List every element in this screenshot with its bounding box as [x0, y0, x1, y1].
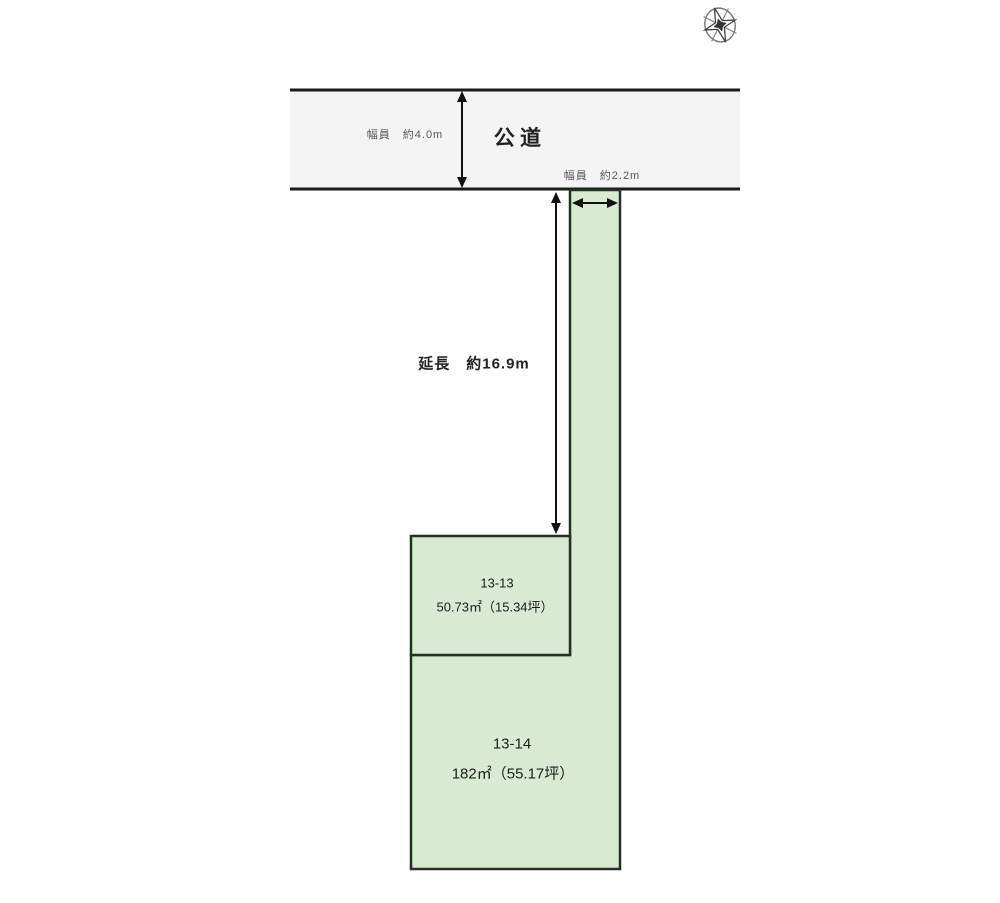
parcel-13-13-area-label: 50.73㎡（15.34坪） [436, 597, 553, 616]
parcel-13-13-shape [411, 536, 570, 655]
approach-length-label: 延長 約16.9m [418, 353, 530, 374]
parcel-13-14-id-label: 13-14 [493, 736, 531, 753]
site-plan-canvas: 幅員 約4.0m 公道 幅員 約2.2m 延長 約16.9m 13-13 50.… [0, 0, 1000, 903]
compass-rose-icon [699, 3, 741, 47]
parcel-13-13-id-label: 13-13 [480, 576, 513, 591]
parcel-13-14-area-label: 182㎡（55.17坪） [452, 763, 575, 784]
road-name-label: 公道 [494, 122, 547, 152]
approach-width-label: 幅員 約2.2m [564, 167, 640, 183]
approach-length-arrow [551, 192, 561, 534]
road-width-label: 幅員 約4.0m [367, 126, 443, 142]
